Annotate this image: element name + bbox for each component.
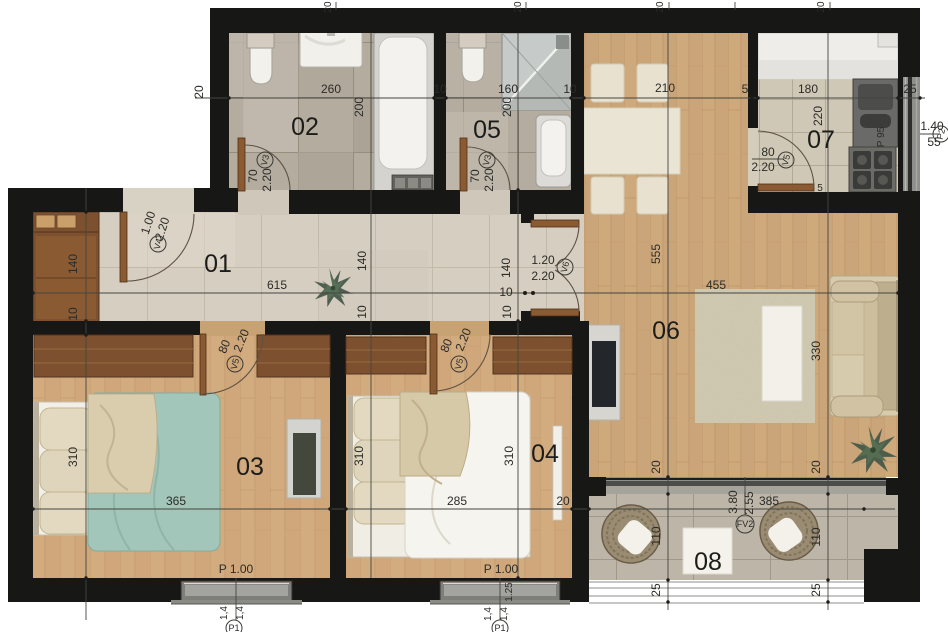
svg-text:310: 310 — [66, 447, 80, 467]
svg-text:140: 140 — [66, 254, 80, 274]
svg-text:2.20: 2.20 — [482, 168, 496, 192]
svg-text:04: 04 — [531, 440, 559, 468]
svg-text:5: 5 — [742, 82, 749, 96]
svg-text:08: 08 — [694, 548, 722, 576]
svg-text:20: 20 — [816, 1, 827, 13]
svg-text:25: 25 — [649, 583, 663, 597]
svg-text:1.20: 1.20 — [531, 253, 555, 267]
svg-text:20: 20 — [513, 1, 524, 13]
svg-text:20: 20 — [655, 1, 666, 13]
svg-text:1,4: 1,4 — [235, 606, 246, 620]
svg-text:330: 330 — [809, 341, 823, 361]
svg-text:3.80: 3.80 — [726, 490, 740, 514]
svg-text:455: 455 — [706, 278, 726, 292]
svg-text:285: 285 — [447, 494, 467, 508]
svg-text:05: 05 — [473, 116, 501, 144]
svg-text:01: 01 — [204, 250, 232, 278]
svg-text:P 1.00: P 1.00 — [219, 562, 254, 576]
svg-text:310: 310 — [352, 446, 366, 466]
svg-text:310: 310 — [502, 446, 516, 466]
svg-text:70: 70 — [468, 169, 482, 183]
svg-text:20: 20 — [649, 460, 663, 474]
svg-text:20: 20 — [192, 85, 206, 99]
svg-text:10: 10 — [563, 82, 577, 96]
svg-text:FV2: FV2 — [737, 519, 754, 529]
svg-text:210: 210 — [655, 81, 675, 95]
svg-text:615: 615 — [267, 278, 287, 292]
svg-text:20: 20 — [809, 460, 823, 474]
svg-text:02: 02 — [291, 113, 319, 141]
svg-text:06: 06 — [652, 317, 680, 345]
svg-text:110: 110 — [809, 527, 823, 546]
svg-text:70: 70 — [246, 169, 260, 183]
svg-text:10: 10 — [500, 305, 514, 319]
svg-text:80: 80 — [761, 145, 775, 159]
svg-text:385: 385 — [759, 494, 779, 508]
svg-text:2.55: 2.55 — [742, 491, 756, 515]
svg-text:P 95: P 95 — [876, 126, 887, 147]
svg-text:140: 140 — [355, 251, 369, 271]
svg-text:1,4: 1,4 — [483, 607, 494, 621]
svg-text:20: 20 — [323, 1, 334, 13]
svg-text:P 1.00: P 1.00 — [484, 562, 519, 576]
svg-text:P1: P1 — [494, 623, 505, 632]
svg-text:200: 200 — [500, 97, 514, 117]
svg-text:10: 10 — [499, 285, 513, 299]
svg-text:365: 365 — [166, 494, 186, 508]
svg-text:10: 10 — [433, 82, 447, 96]
svg-text:220: 220 — [811, 106, 825, 126]
svg-text:140: 140 — [499, 258, 513, 278]
svg-text:25: 25 — [809, 583, 823, 597]
svg-text:03: 03 — [236, 453, 264, 481]
svg-text:1,4: 1,4 — [219, 606, 230, 620]
svg-text:2.20: 2.20 — [751, 160, 775, 174]
svg-text:P1: P1 — [228, 623, 239, 632]
svg-text:10: 10 — [355, 305, 369, 319]
svg-text:10: 10 — [66, 307, 80, 321]
svg-text:1.25: 1.25 — [504, 582, 515, 602]
svg-text:110: 110 — [649, 526, 663, 545]
svg-text:1,4: 1,4 — [499, 607, 510, 621]
svg-text:07: 07 — [807, 126, 835, 154]
svg-text:20: 20 — [556, 494, 570, 508]
svg-text:160: 160 — [498, 82, 518, 96]
svg-text:2.20: 2.20 — [260, 168, 274, 192]
svg-text:260: 260 — [321, 82, 341, 96]
svg-text:555: 555 — [649, 244, 663, 264]
svg-text:200: 200 — [352, 97, 366, 117]
svg-text:180: 180 — [798, 82, 818, 96]
svg-text:2.20: 2.20 — [531, 269, 555, 283]
svg-text:25: 25 — [903, 82, 917, 96]
svg-text:5: 5 — [817, 183, 823, 194]
